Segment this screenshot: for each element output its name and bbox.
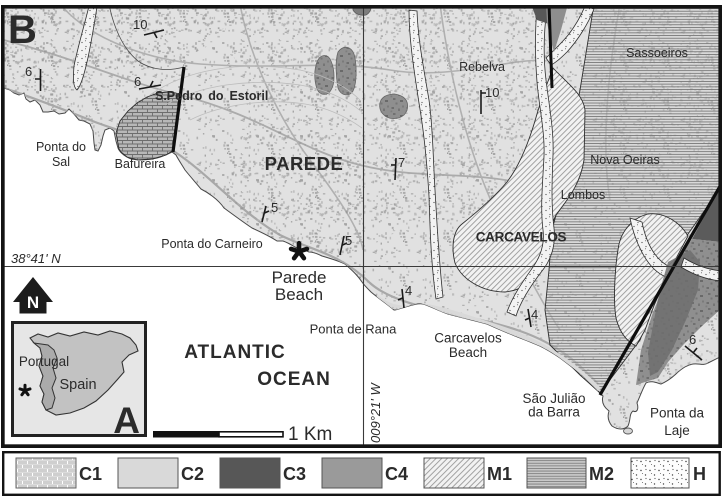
svg-text:Ponta do Carneiro: Ponta do Carneiro [161, 237, 263, 251]
svg-text:M2: M2 [589, 464, 614, 484]
svg-text:4: 4 [531, 307, 538, 322]
svg-text:ATLANTIC: ATLANTIC [184, 342, 286, 363]
svg-text:009°21' W: 009°21' W [368, 382, 383, 443]
svg-text:PAREDE: PAREDE [265, 153, 344, 174]
svg-text:38°41' N: 38°41' N [11, 251, 61, 266]
svg-text:C3: C3 [283, 464, 306, 484]
svg-text:Ponta de Rana: Ponta de Rana [310, 322, 398, 337]
svg-text:Beach: Beach [449, 345, 487, 360]
svg-text:10: 10 [133, 17, 147, 32]
svg-text:10: 10 [485, 85, 499, 100]
svg-text:C4: C4 [385, 464, 408, 484]
svg-text:Sal: Sal [52, 155, 70, 169]
svg-text:7: 7 [398, 155, 405, 170]
svg-text:Rebelva: Rebelva [459, 60, 505, 74]
svg-text:Beach: Beach [275, 285, 323, 304]
svg-text:da Barra: da Barra [528, 405, 580, 420]
svg-text:4: 4 [405, 283, 412, 298]
svg-text:6: 6 [25, 64, 32, 79]
svg-text:A: A [113, 400, 140, 441]
svg-text:Bafureira: Bafureira [115, 157, 166, 171]
svg-text:5: 5 [345, 233, 352, 248]
svg-text:C1: C1 [79, 464, 102, 484]
svg-text:Ponta da: Ponta da [650, 406, 705, 421]
svg-text:6: 6 [689, 332, 696, 347]
svg-text:Ponta do: Ponta do [36, 140, 86, 154]
svg-text:Spain: Spain [59, 377, 96, 393]
svg-text:Nova Oeiras: Nova Oeiras [590, 153, 659, 167]
svg-text:Sassoeiros: Sassoeiros [626, 46, 688, 60]
svg-text:5: 5 [271, 200, 278, 215]
svg-text:H: H [693, 464, 706, 484]
svg-text:M1: M1 [487, 464, 512, 484]
svg-text:1 Km: 1 Km [288, 424, 332, 445]
svg-text:6: 6 [134, 74, 141, 89]
svg-text:Lombos: Lombos [561, 188, 605, 202]
svg-text:Portugal: Portugal [19, 354, 69, 369]
svg-text:C2: C2 [181, 464, 204, 484]
svg-text:Laje: Laje [664, 423, 690, 438]
svg-text:N: N [27, 293, 39, 312]
svg-text:OCEAN: OCEAN [257, 369, 331, 390]
svg-text:Carcavelos: Carcavelos [434, 331, 502, 346]
svg-text:S.Pedro do Estoril: S.Pedro do Estoril [155, 89, 268, 103]
svg-text:B: B [8, 8, 37, 52]
svg-text:CARCAVELOS: CARCAVELOS [476, 230, 567, 245]
